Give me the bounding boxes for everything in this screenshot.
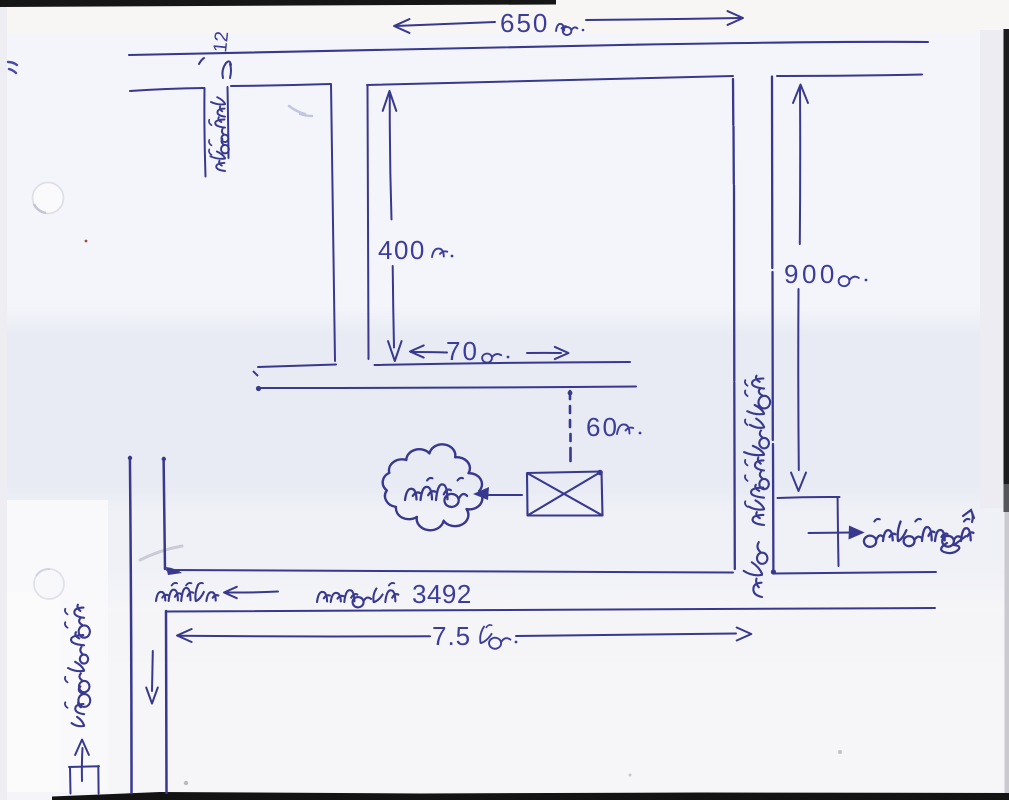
svg-text:900: 900 <box>784 259 838 289</box>
svg-text:650: 650 <box>500 8 549 38</box>
svg-text:70: 70 <box>446 336 479 366</box>
svg-text:7.5: 7.5 <box>432 621 471 651</box>
svg-text:3492: 3492 <box>412 579 472 609</box>
svg-text:60: 60 <box>586 412 619 442</box>
svg-text:12: 12 <box>210 30 233 53</box>
svg-text:400: 400 <box>378 235 426 265</box>
